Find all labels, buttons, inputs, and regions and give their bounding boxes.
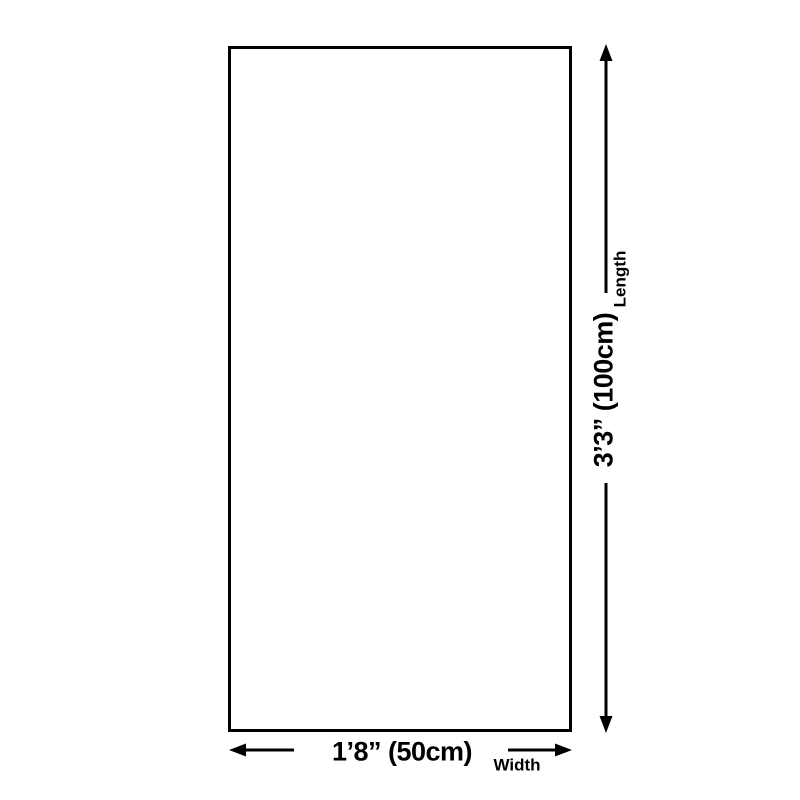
size-diagram: 3’3” (100cm) Length 1’8” (50cm) Width	[0, 0, 800, 800]
arrow-down-icon	[600, 716, 613, 733]
dimension-arrows	[0, 0, 800, 800]
length-axis-label: Length	[612, 251, 629, 308]
width-axis-label: Width	[493, 757, 540, 774]
length-value-label: 3’3” (100cm)	[591, 313, 618, 468]
arrow-right-icon	[555, 744, 572, 757]
width-value-label: 1’8” (50cm)	[332, 739, 472, 766]
